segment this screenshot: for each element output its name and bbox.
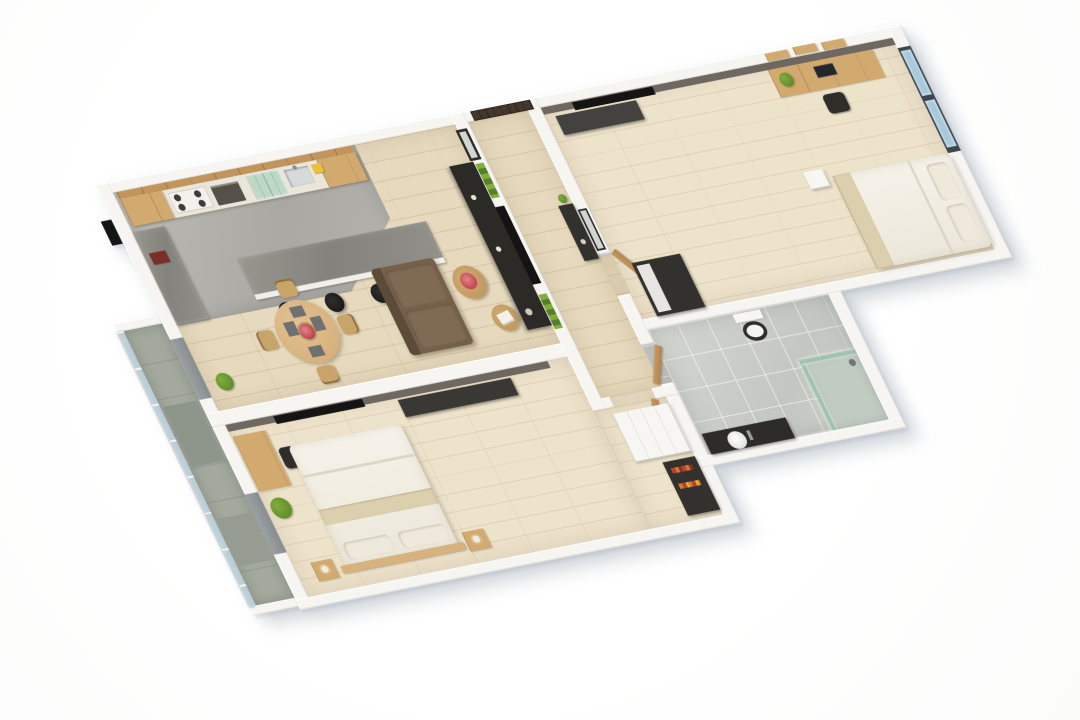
- render-background: [0, 0, 1080, 720]
- floor-plan-render: [35, 25, 1080, 637]
